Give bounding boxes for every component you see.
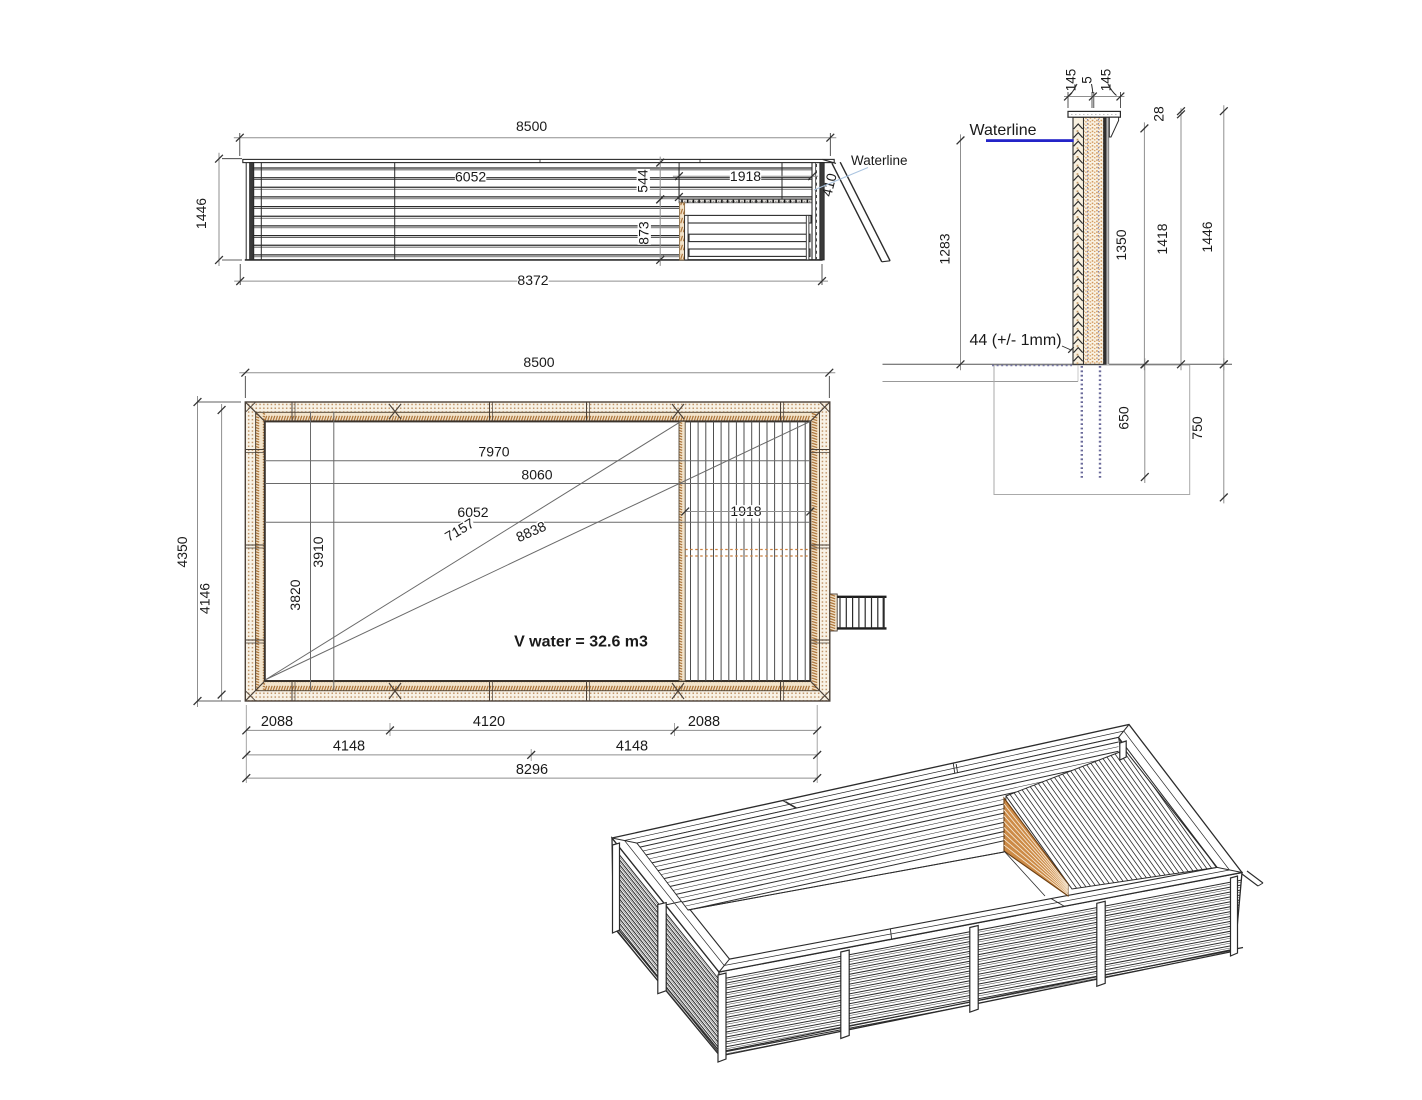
svg-text:8060: 8060 <box>521 466 552 482</box>
svg-text:V water = 32.6 m3: V water = 32.6 m3 <box>514 634 648 651</box>
svg-text:8500: 8500 <box>516 118 547 134</box>
svg-text:8296: 8296 <box>516 762 548 778</box>
svg-text:145: 145 <box>1064 69 1079 92</box>
svg-text:6052: 6052 <box>457 504 488 520</box>
svg-text:5: 5 <box>1080 76 1095 84</box>
svg-text:650: 650 <box>1116 406 1132 430</box>
svg-text:7970: 7970 <box>478 444 509 460</box>
svg-text:1446: 1446 <box>1199 221 1215 252</box>
svg-text:28: 28 <box>1151 106 1167 122</box>
svg-text:44 (+/- 1mm): 44 (+/- 1mm) <box>970 332 1062 349</box>
svg-text:2088: 2088 <box>261 714 293 730</box>
svg-text:6052: 6052 <box>455 169 486 185</box>
svg-text:Waterline: Waterline <box>851 153 908 168</box>
svg-text:145: 145 <box>1099 69 1114 92</box>
svg-text:4146: 4146 <box>197 583 213 614</box>
svg-text:1418: 1418 <box>1154 223 1170 254</box>
svg-text:1918: 1918 <box>730 168 761 184</box>
svg-text:Waterline: Waterline <box>970 122 1037 139</box>
svg-text:2088: 2088 <box>688 714 720 730</box>
svg-text:4148: 4148 <box>616 739 648 755</box>
svg-text:8500: 8500 <box>523 354 554 370</box>
svg-text:4350: 4350 <box>174 536 190 567</box>
svg-text:544: 544 <box>635 169 651 193</box>
svg-text:3820: 3820 <box>287 579 303 610</box>
svg-text:1446: 1446 <box>193 198 209 229</box>
svg-text:873: 873 <box>636 221 652 245</box>
svg-text:1350: 1350 <box>1113 229 1129 260</box>
svg-text:750: 750 <box>1189 416 1205 440</box>
svg-text:4148: 4148 <box>333 739 365 755</box>
svg-text:4120: 4120 <box>473 714 505 730</box>
svg-text:8372: 8372 <box>517 272 548 288</box>
svg-text:1283: 1283 <box>937 233 953 264</box>
svg-text:3910: 3910 <box>310 536 326 567</box>
